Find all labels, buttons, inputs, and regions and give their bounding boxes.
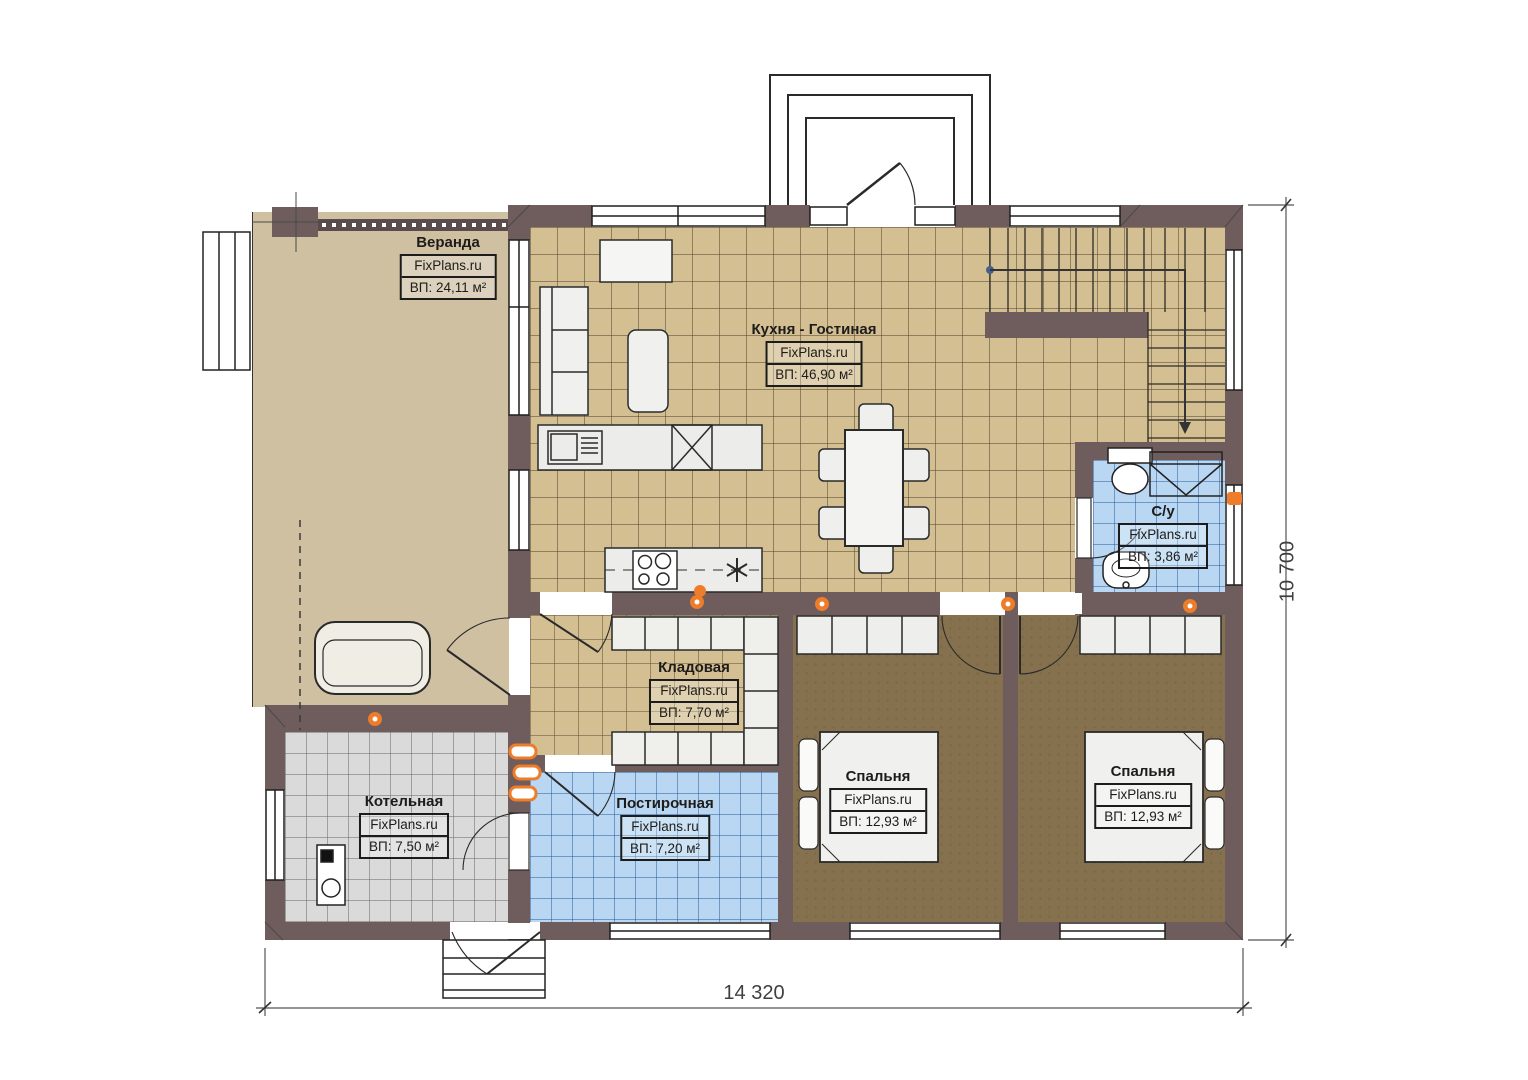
room-info-box: FixPlans.ru ВП: 3,86 м² [1118,523,1208,569]
window [1226,250,1242,390]
window [509,240,529,415]
wall [1003,615,1018,922]
wall [612,592,940,615]
window [592,206,765,226]
area-text: ВП: 12,93 м² [831,812,925,832]
wall [1075,460,1093,498]
wall [765,205,810,227]
window [1226,485,1242,585]
brand-text: FixPlans.ru [831,790,925,812]
wall [530,755,545,772]
brand-text: FixPlans.ru [767,343,861,365]
window [1010,206,1120,226]
wall [778,615,793,922]
wall [615,755,778,772]
wall [508,695,530,813]
room-label-veranda: Веранда FixPlans.ru ВП: 24,11 м² [400,234,497,300]
entrance-porch [770,75,990,205]
room-info-box: FixPlans.ru ВП: 24,11 м² [400,254,497,300]
dimension-width: 14 320 [694,982,814,1005]
area-text: ВП: 12,93 м² [1096,807,1190,827]
wall [1005,592,1018,615]
window [1060,923,1165,939]
brand-text: FixPlans.ru [1096,785,1190,807]
wall [770,922,850,940]
wall [265,922,450,940]
entrance-door [847,163,915,205]
area-text: ВП: 7,20 м² [622,839,708,859]
back-steps [443,940,545,998]
room-label-bedroom1: Спальня FixPlans.ru ВП: 12,93 м² [829,768,927,834]
room-label-wc: С/у FixPlans.ru ВП: 3,86 м² [1118,503,1208,569]
wall [265,880,285,940]
room-name: С/у [1118,503,1208,520]
veranda-steps [203,232,250,370]
room-name: Веранда [400,234,497,251]
area-text: ВП: 3,86 м² [1120,547,1206,567]
room-info-box: FixPlans.ru ВП: 7,50 м² [359,813,449,859]
wall [508,592,540,615]
room-name: Кладовая [649,659,739,676]
room-label-laundry: Постирочная FixPlans.ru ВП: 7,20 м² [616,795,713,861]
area-text: ВП: 46,90 м² [767,365,861,385]
wall [1225,205,1243,250]
wall [1000,922,1060,940]
wall [508,870,530,940]
area-text: ВП: 7,50 м² [361,837,447,857]
brand-text: FixPlans.ru [361,815,447,837]
room-name: Котельная [359,793,449,810]
floor-plan: Веранда FixPlans.ru ВП: 24,11 м² Кухня -… [0,0,1528,1080]
window [610,923,770,939]
wall [265,705,508,732]
wall [508,205,530,240]
room-label-storage: Кладовая FixPlans.ru ВП: 7,70 м² [649,659,739,725]
room-name: Кухня - Гостиная [752,321,877,338]
room-label-bedroom2: Спальня FixPlans.ru ВП: 12,93 м² [1094,763,1192,829]
wall [540,922,610,940]
wall [1075,558,1093,615]
wall [1225,390,1243,485]
area-text: ВП: 24,11 м² [402,278,495,298]
wall [508,415,530,470]
wall [1082,592,1243,615]
window [850,923,1000,939]
wall [1075,442,1225,460]
wall [1165,922,1243,940]
room-label-boiler: Котельная FixPlans.ru ВП: 7,50 м² [359,793,449,859]
room-label-kitchen: Кухня - Гостиная FixPlans.ru ВП: 46,90 м… [752,321,877,387]
entrance-sidelight [810,207,955,225]
dimension-height: 10 700 [1277,512,1300,632]
room-info-box: FixPlans.ru ВП: 7,70 м² [649,679,739,725]
room-name: Спальня [1094,763,1192,780]
brand-text: FixPlans.ru [402,256,495,278]
brand-text: FixPlans.ru [622,817,708,839]
window [266,790,284,880]
wall [1225,585,1243,940]
brand-text: FixPlans.ru [651,681,737,703]
room-info-box: FixPlans.ru ВП: 46,90 м² [765,341,863,387]
room-info-box: FixPlans.ru ВП: 12,93 м² [1094,783,1192,829]
area-text: ВП: 7,70 м² [651,703,737,723]
veranda-corner-post [272,207,318,237]
window [509,470,529,550]
stair-landing-wall [985,312,1148,338]
brand-text: FixPlans.ru [1120,525,1206,547]
room-name: Спальня [829,768,927,785]
room-info-box: FixPlans.ru ВП: 12,93 м² [829,788,927,834]
wall [955,205,1010,227]
room-name: Постирочная [616,795,713,812]
room-info-box: FixPlans.ru ВП: 7,20 м² [620,815,710,861]
